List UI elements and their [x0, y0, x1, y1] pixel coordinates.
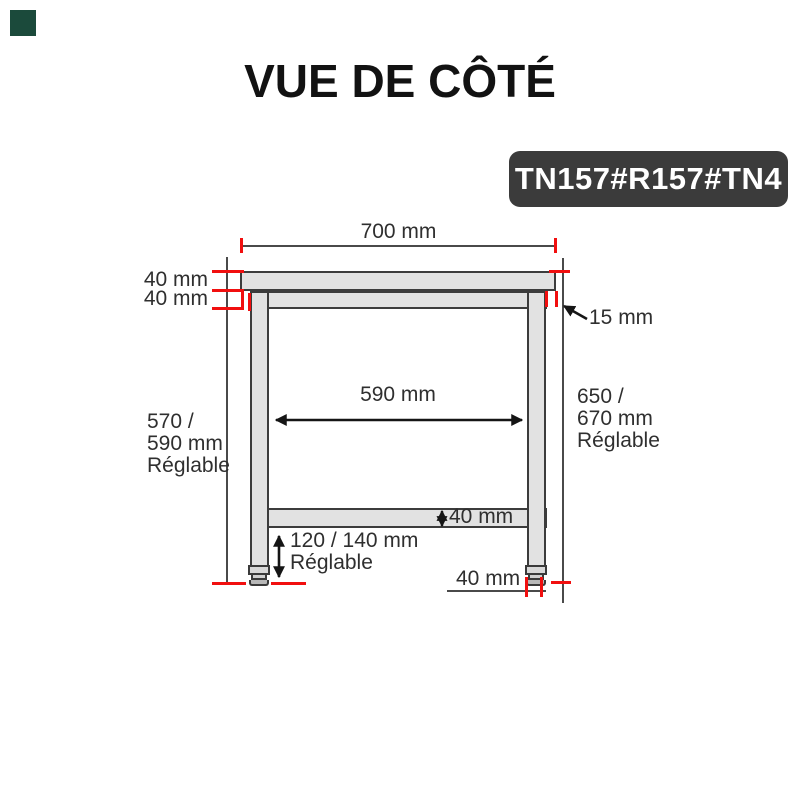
- left-leg: [250, 291, 269, 567]
- tick-left-leg-a: [241, 291, 244, 309]
- label-right-height-line2: 670 mm: [577, 408, 660, 430]
- label-foot-height: 120 / 140 mm Réglable: [290, 530, 418, 574]
- tick-leg-width-left: [525, 577, 528, 597]
- tick-floor-left-b: [271, 582, 306, 585]
- tick-rail-bottom: [212, 307, 244, 310]
- left-adjustable-foot: [248, 565, 270, 586]
- label-inner-width: 590 mm: [270, 384, 526, 406]
- label-left-height: 570 / 590 mm Réglable: [147, 411, 230, 477]
- label-left-height-line1: 570 /: [147, 411, 230, 433]
- tick-top-right: [549, 270, 570, 273]
- label-edge-offset: 15 mm: [589, 307, 653, 329]
- foot-base: [526, 580, 546, 586]
- dimension-line-leg-width: [447, 590, 546, 592]
- label-foot-height-line1: 120 / 140 mm: [290, 530, 418, 552]
- tabletop: [240, 271, 556, 291]
- foot-ring: [248, 565, 270, 575]
- tick-15mm-outer: [555, 291, 558, 307]
- brand-logo-square: [10, 10, 36, 36]
- tick-tabletop-bottom: [212, 289, 244, 292]
- product-code-text: TN157#R157#TN4: [515, 161, 782, 197]
- product-code-badge: TN157#R157#TN4: [509, 151, 788, 207]
- label-right-height-line1: 650 /: [577, 386, 660, 408]
- label-foot-height-line2: Réglable: [290, 552, 418, 574]
- page-title: VUE DE CÔTÉ: [0, 54, 800, 108]
- label-frame-thickness: 40 mm: [120, 288, 208, 310]
- arrow-15mm-pointer: [564, 306, 587, 319]
- label-right-height-line3: Réglable: [577, 430, 660, 452]
- foot-ring: [525, 565, 547, 575]
- label-leg-width: 40 mm: [456, 568, 520, 590]
- label-top-width: 700 mm: [242, 221, 555, 243]
- foot-base: [249, 580, 269, 586]
- label-shelf-thickness: 40 mm: [449, 506, 513, 528]
- tick-leg-width-right: [540, 577, 543, 597]
- tick-floor-left-a: [212, 582, 246, 585]
- right-adjustable-foot: [525, 565, 547, 586]
- tick-15mm-inner: [545, 291, 548, 307]
- right-leg: [527, 291, 546, 567]
- tick-floor-right: [551, 581, 571, 584]
- side-view-diagram-page: VUE DE CÔTÉ TN157#R157#TN4: [0, 0, 800, 800]
- dimension-line-right-height: [562, 258, 564, 603]
- label-left-height-line2: 590 mm: [147, 433, 230, 455]
- label-right-height: 650 / 670 mm Réglable: [577, 386, 660, 452]
- tick-left-leg-b: [248, 293, 251, 311]
- frame-rail: [250, 291, 547, 309]
- tick-tabletop-top: [212, 270, 244, 273]
- dimension-line-700: [242, 245, 555, 247]
- label-left-height-line3: Réglable: [147, 455, 230, 477]
